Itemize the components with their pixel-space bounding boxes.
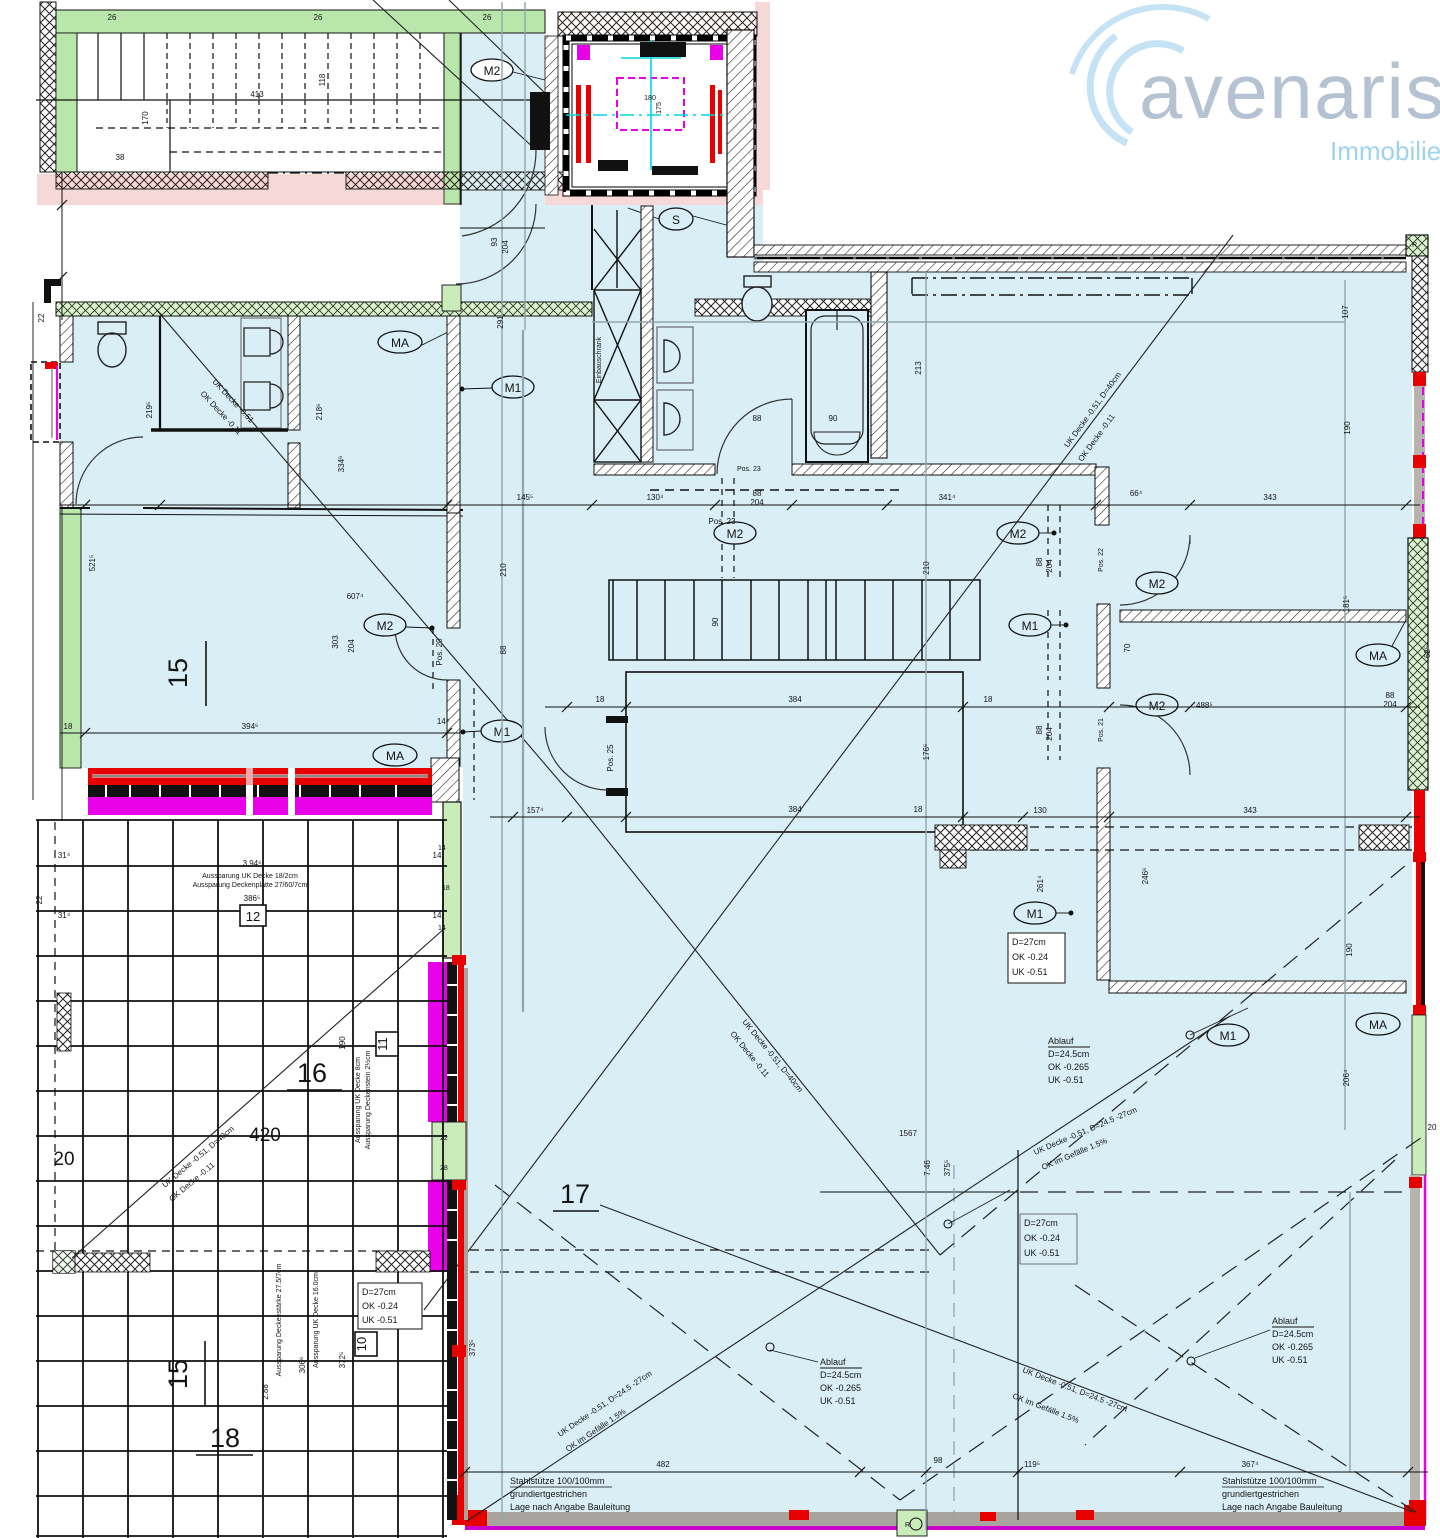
svg-text:15: 15 [163,658,193,688]
svg-text:Ablauf: Ablauf [820,1357,846,1367]
svg-text:291: 291 [496,315,505,329]
svg-text:14: 14 [433,911,442,920]
svg-text:210: 210 [499,563,508,577]
svg-text:M1: M1 [1027,907,1044,921]
svg-text:Aussparung UK Decke 16.0cm: Aussparung UK Decke 16.0cm [313,1272,320,1368]
svg-text:OK -0.265: OK -0.265 [1048,1062,1089,1072]
svg-text:118: 118 [318,73,327,86]
svg-text:488⁵: 488⁵ [1196,701,1213,710]
svg-text:3.94⁶: 3.94⁶ [243,859,262,868]
svg-text:204: 204 [347,639,356,653]
svg-text:avenaris: avenaris [1139,47,1440,135]
svg-text:88: 88 [499,645,508,654]
svg-text:7.46: 7.46 [923,1160,932,1176]
svg-text:grundiertgestrichen: grundiertgestrichen [510,1489,587,1499]
svg-text:176⁵: 176⁵ [922,744,931,761]
svg-text:UK -0.51: UK -0.51 [1012,967,1048,977]
svg-text:17: 17 [560,1179,590,1209]
svg-text:607⁴: 607⁴ [347,592,364,601]
svg-text:384: 384 [788,805,802,814]
svg-text:26: 26 [108,13,117,22]
svg-text:343: 343 [1263,493,1277,502]
svg-text:204: 204 [501,240,510,254]
svg-text:UK -0.51: UK -0.51 [1048,1075,1084,1085]
svg-text:204: 204 [1045,559,1054,573]
svg-text:Pos. 23: Pos. 23 [737,466,761,473]
svg-text:145⁵: 145⁵ [517,493,534,502]
svg-text:157⁴: 157⁴ [527,806,544,815]
svg-text:D=24.5cm: D=24.5cm [1048,1049,1089,1059]
svg-text:Stahlstütze 100/100mm: Stahlstütze 100/100mm [1222,1476,1317,1486]
svg-text:180: 180 [644,95,656,102]
svg-text:14⁴: 14⁴ [437,717,450,726]
svg-text:190: 190 [1345,943,1354,957]
svg-text:88: 88 [1035,725,1044,734]
svg-text:Pos. 23: Pos. 23 [708,517,736,526]
svg-text:OK -0.24: OK -0.24 [362,1301,398,1311]
svg-text:12: 12 [246,909,260,924]
svg-text:D=27cm: D=27cm [1012,937,1046,947]
svg-text:R: R [905,1522,910,1529]
svg-text:334⁶: 334⁶ [337,456,346,473]
svg-text:218⁶: 218⁶ [315,404,324,421]
svg-text:206⁴: 206⁴ [1342,1069,1351,1086]
svg-text:MA: MA [386,749,404,763]
svg-text:20: 20 [1428,1123,1437,1132]
svg-text:90: 90 [711,617,720,626]
svg-text:UK -0.51: UK -0.51 [1272,1355,1308,1365]
svg-text:88: 88 [753,489,762,498]
svg-text:M2: M2 [1149,699,1166,713]
svg-text:62⁵: 62⁵ [1423,646,1432,658]
svg-text:38: 38 [116,153,125,162]
svg-text:D=27cm: D=27cm [1024,1218,1058,1228]
svg-text:93: 93 [490,237,499,246]
svg-text:Pos. 22: Pos. 22 [1098,548,1105,572]
svg-text:420: 420 [249,1125,281,1146]
svg-text:15: 15 [163,1359,193,1389]
svg-text:2.88: 2.88 [261,1384,270,1400]
svg-text:170: 170 [141,111,150,125]
svg-text:Ablauf: Ablauf [1272,1316,1298,1326]
svg-text:26: 26 [314,13,323,22]
svg-text:343: 343 [1243,806,1257,815]
svg-text:22: 22 [35,895,44,904]
svg-text:341⁴: 341⁴ [939,493,956,502]
svg-text:372⁵: 372⁵ [338,1352,347,1369]
svg-text:M2: M2 [1149,577,1166,591]
svg-text:OK -0.24: OK -0.24 [1012,952,1048,962]
svg-text:88: 88 [1035,557,1044,566]
svg-text:Ablauf: Ablauf [1048,1036,1074,1046]
svg-text:375⁵: 375⁵ [943,1160,952,1177]
svg-text:Pos. 25: Pos. 25 [606,744,615,772]
svg-text:10: 10 [354,1337,369,1351]
svg-text:UK -0.51: UK -0.51 [362,1315,398,1325]
svg-text:190: 190 [1343,421,1352,435]
svg-text:521⁵: 521⁵ [88,555,97,572]
svg-text:OK -0.265: OK -0.265 [1272,1342,1313,1352]
svg-text:88: 88 [1386,691,1395,700]
svg-text:MA: MA [1369,649,1387,663]
svg-text:130: 130 [1033,806,1047,815]
svg-text:Einbauschrank: Einbauschrank [596,336,603,383]
svg-text:Pos. 20: Pos. 20 [435,638,444,666]
svg-text:Aussparung UK Decke 8cm: Aussparung UK Decke 8cm [355,1057,362,1143]
svg-text:OK -0.265: OK -0.265 [820,1383,861,1393]
svg-text:204: 204 [1045,727,1054,741]
svg-text:Lage nach Angabe Bauleitung: Lage nach Angabe Bauleitung [510,1502,630,1512]
svg-text:M2: M2 [484,64,501,78]
svg-text:UK -0.51: UK -0.51 [820,1396,856,1406]
svg-text:Lage nach Angabe Bauleitung: Lage nach Angabe Bauleitung [1222,1502,1342,1512]
svg-text:384: 384 [788,695,802,704]
svg-text:175: 175 [656,102,663,114]
svg-text:D=24.5cm: D=24.5cm [820,1370,861,1380]
svg-text:219⁵: 219⁵ [145,402,154,419]
svg-text:M1: M1 [1022,619,1039,633]
svg-text:Aussparung Deckenstein 2½cm: Aussparung Deckenstein 2½cm [364,1050,372,1149]
svg-text:M2: M2 [377,619,394,633]
svg-text:246⁶: 246⁶ [1141,868,1150,885]
svg-text:MA: MA [1369,1018,1387,1032]
svg-text:181⁵: 181⁵ [1342,596,1351,613]
svg-text:119⁵: 119⁵ [1024,1460,1040,1469]
svg-text:373⁵: 373⁵ [468,1340,477,1357]
svg-text:D=27cm: D=27cm [362,1287,396,1297]
svg-text:grundiertgestrichen: grundiertgestrichen [1222,1489,1299,1499]
svg-text:1567: 1567 [899,1129,917,1138]
svg-text:11: 11 [375,1037,390,1051]
svg-text:S: S [672,213,680,227]
svg-text:413: 413 [250,90,264,99]
svg-text:70: 70 [1123,643,1132,652]
svg-text:OK -0.24: OK -0.24 [1024,1233,1060,1243]
svg-text:18: 18 [210,1423,240,1453]
svg-text:367⁴: 367⁴ [1242,1460,1259,1469]
svg-text:14: 14 [433,851,442,860]
svg-text:31⁴: 31⁴ [58,911,71,920]
svg-text:D=24.5cm: D=24.5cm [1272,1329,1313,1339]
svg-text:204: 204 [750,498,764,507]
svg-text:18: 18 [984,695,993,704]
svg-text:28: 28 [440,1165,448,1172]
svg-text:16: 16 [297,1058,327,1088]
svg-text:482: 482 [656,1460,670,1469]
svg-text:190: 190 [338,1036,347,1050]
svg-text:20: 20 [53,1149,74,1170]
svg-text:26: 26 [483,13,492,22]
svg-text:306⁶: 306⁶ [298,1357,307,1374]
svg-text:130⁴: 130⁴ [647,493,664,502]
svg-text:386⁵: 386⁵ [244,894,261,903]
svg-text:88: 88 [753,414,762,423]
svg-text:303: 303 [331,635,340,649]
svg-text:MA: MA [391,336,409,350]
svg-text:Aussparung UK Decke 18/2cm: Aussparung UK Decke 18/2cm [202,873,298,880]
svg-text:18: 18 [914,805,923,814]
svg-text:22: 22 [37,313,46,322]
svg-text:Aussparung Deckenplatte 27/60/: Aussparung Deckenplatte 27/60/7cm [193,882,308,889]
svg-text:Stahlstütze 100/100mm: Stahlstütze 100/100mm [510,1476,605,1486]
svg-text:204: 204 [1383,700,1397,709]
svg-text:213: 213 [914,361,923,375]
svg-text:90: 90 [829,414,838,423]
svg-text:Aussparung Deckenstärke 27.5/7: Aussparung Deckenstärke 27.5/7cm [276,1263,283,1376]
svg-text:R: R [1412,242,1417,249]
svg-text:31⁴: 31⁴ [58,851,71,860]
svg-text:261⁴: 261⁴ [1036,875,1045,892]
svg-text:UK -0.51: UK -0.51 [1024,1248,1060,1258]
svg-text:107: 107 [1341,305,1350,319]
svg-text:M1: M1 [505,381,522,395]
svg-text:Immobilien: Immobilien [1330,136,1440,166]
svg-text:210: 210 [922,561,931,575]
svg-text:394⁶: 394⁶ [242,722,259,731]
svg-text:66⁴: 66⁴ [1130,489,1143,498]
svg-text:M1: M1 [1220,1029,1237,1043]
svg-text:18: 18 [64,722,73,731]
svg-text:98: 98 [934,1456,943,1465]
svg-text:18: 18 [596,695,605,704]
svg-text:M2: M2 [727,527,744,541]
svg-text:Pos. 21: Pos. 21 [1098,718,1105,742]
